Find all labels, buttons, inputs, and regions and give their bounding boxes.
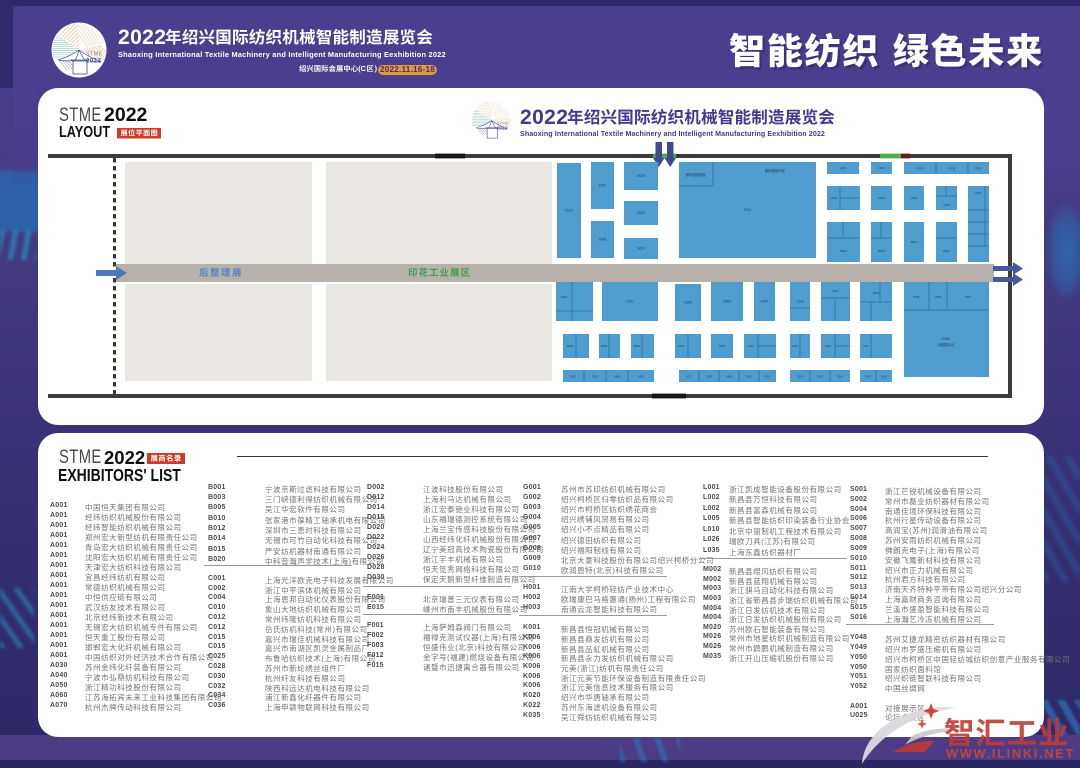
svg-text:WWW.ILINKI.NET: WWW.ILINKI.NET: [946, 746, 1075, 761]
